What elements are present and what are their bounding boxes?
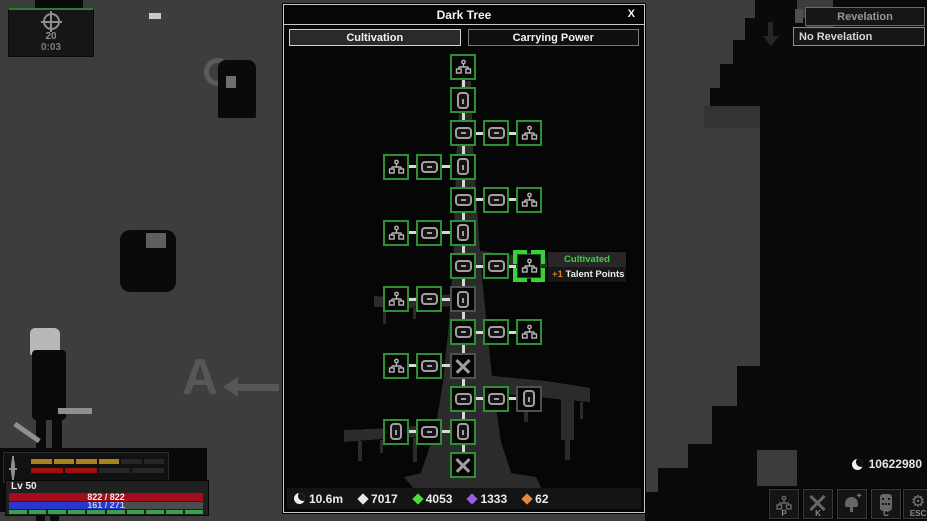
talent-node[interactable] — [416, 154, 442, 180]
stone-tablet-icon — [421, 161, 438, 173]
talent-node[interactable] — [383, 353, 409, 379]
branch-icon — [388, 291, 405, 307]
talent-node[interactable] — [416, 220, 442, 246]
wave-timer: 0:03 — [41, 42, 61, 53]
meter-segment — [121, 459, 142, 464]
branch-icon — [455, 59, 472, 75]
meter-segment — [146, 510, 164, 514]
talent-node[interactable] — [450, 54, 476, 80]
bell-stem — [850, 507, 853, 512]
talent-node[interactable] — [450, 220, 476, 246]
branch-icon — [388, 358, 405, 374]
tooltip-status: Cultivated — [548, 252, 626, 267]
selection-bracket — [531, 250, 545, 264]
branch-icon — [521, 324, 538, 340]
meter-segment — [107, 510, 125, 514]
dialog-header: Dark Tree X — [284, 5, 644, 25]
resource-gem-purple: 1333 — [468, 492, 507, 506]
wave-panel: 20 0:03 — [8, 8, 94, 57]
blob-head — [146, 233, 166, 248]
stone-tablet-icon — [457, 224, 469, 241]
revelation-title: Revelation — [837, 11, 893, 23]
stone-tablet-icon — [421, 227, 438, 239]
revelation-panel[interactable]: Revelation — [805, 7, 925, 26]
enemy-face — [226, 76, 236, 88]
talent-node[interactable] — [483, 386, 509, 412]
settings-button[interactable]: ⚙ ESC — [903, 489, 927, 519]
meter-segment — [144, 459, 165, 464]
sword-icon — [58, 408, 92, 414]
talent-node[interactable] — [383, 154, 409, 180]
hotkey-label: K — [804, 509, 832, 518]
resource-gem-white: 7017 — [359, 492, 398, 506]
resource-value: 4053 — [426, 492, 453, 506]
stone-tablet-icon — [455, 194, 472, 206]
resource-value: 1333 — [480, 492, 507, 506]
white-spark — [149, 13, 161, 19]
target-icon — [43, 13, 60, 30]
diamond-icon — [357, 493, 368, 504]
close-button[interactable]: X — [628, 8, 635, 20]
stone-tablet-icon — [488, 127, 505, 139]
dialog-title: Dark Tree — [437, 8, 492, 22]
meter-segment — [31, 459, 52, 464]
meter-segment — [127, 510, 145, 514]
stone-tablet-icon — [457, 423, 469, 440]
statue-arrow-head — [763, 36, 779, 46]
talent-node[interactable] — [483, 120, 509, 146]
resource-value: 7017 — [371, 492, 398, 506]
resource-gem-green: 4053 — [414, 492, 453, 506]
branch-icon — [388, 159, 405, 175]
mp-bar: 161 / 271 — [9, 502, 203, 509]
meter-segment — [9, 510, 27, 514]
branch-icon — [521, 192, 538, 208]
moon-currency-display: 10622980 — [852, 457, 922, 471]
dark-wall-step-1 — [737, 366, 763, 521]
resource-value: 10.6m — [309, 492, 343, 506]
hp-text: 822 / 822 — [9, 493, 203, 501]
stone-tablet-icon — [523, 390, 535, 407]
talent-node[interactable] — [483, 319, 509, 345]
talent-node[interactable] — [383, 220, 409, 246]
hotkey-label: C — [872, 509, 900, 518]
dark-wall-step-4 — [658, 468, 690, 521]
cross-icon — [455, 457, 471, 473]
talent-node[interactable] — [516, 187, 542, 213]
talent-node[interactable] — [450, 419, 476, 445]
talent-node[interactable] — [450, 253, 476, 279]
stamina-bar — [9, 510, 203, 514]
stone-tablet-icon — [421, 360, 438, 372]
dark-wall-step-5 — [645, 492, 660, 521]
dark-wall-step-3 — [688, 444, 714, 521]
stone-tablet-icon — [457, 158, 469, 175]
meter-segment — [48, 510, 66, 514]
talent-node[interactable] — [450, 87, 476, 113]
stone-tablet-icon — [390, 423, 402, 440]
revelation-tab-sliver — [795, 9, 803, 23]
player-status-panel: Lv 50 822 / 822 161 / 271 — [5, 480, 209, 516]
dark-wall-step-2 — [712, 406, 740, 521]
enemy-sprite-hooded — [218, 60, 256, 118]
meter-segment — [65, 468, 97, 473]
moon-currency-value: 10622980 — [869, 457, 922, 471]
hp-bar: 822 / 822 — [9, 493, 203, 501]
talent-node[interactable] — [516, 120, 542, 146]
talents-button[interactable]: P — [769, 489, 799, 519]
statue-sprite — [755, 0, 797, 20]
branch-icon — [521, 125, 538, 141]
gold-meter — [31, 459, 164, 464]
meter-segment — [54, 459, 75, 464]
stone-tablet-icon — [488, 393, 505, 405]
stone-tablet-icon — [488, 260, 505, 272]
consumable-button[interactable]: ✦ — [837, 489, 867, 519]
stone-tablet-icon — [457, 92, 469, 109]
talent-node-selected[interactable] — [516, 253, 542, 279]
talent-node[interactable] — [450, 353, 476, 379]
revelation-status[interactable]: No Revelation — [793, 27, 925, 46]
selection-bracket — [531, 268, 545, 282]
talent-node[interactable] — [450, 386, 476, 412]
diamond-icon — [521, 493, 532, 504]
level-label: Lv 50 — [11, 481, 37, 492]
resource-moon: 10.6m — [294, 492, 343, 506]
tab-cultivation[interactable]: Cultivation — [289, 29, 461, 46]
talent-node[interactable] — [450, 154, 476, 180]
talent-node[interactable] — [516, 319, 542, 345]
meter-segment — [29, 510, 47, 514]
tooltip-bonus: +1 Talent Points — [548, 267, 626, 282]
talent-node[interactable] — [483, 253, 509, 279]
tab-carrying-power[interactable]: Carrying Power — [468, 29, 640, 46]
hotkey-label: P — [770, 509, 798, 518]
talent-node[interactable] — [450, 187, 476, 213]
stone-tablet-icon — [488, 326, 505, 338]
talent-node[interactable] — [416, 286, 442, 312]
skills-button[interactable]: K — [803, 489, 833, 519]
tooltip-bonus-value: +1 — [552, 269, 563, 280]
moon-icon — [294, 493, 305, 504]
meter-segment — [31, 468, 63, 473]
wave-counter: 20 — [45, 31, 56, 42]
meter-segment — [99, 459, 120, 464]
dark-wall-1 — [833, 0, 927, 521]
talent-node[interactable] — [450, 452, 476, 478]
gear-icon: ⚙ — [911, 492, 925, 511]
talent-node[interactable] — [383, 286, 409, 312]
stone-tablet-icon — [421, 426, 438, 438]
moon-icon — [852, 459, 863, 470]
stone-tablet-icon — [455, 393, 472, 405]
selection-bracket — [513, 268, 527, 282]
talent-node[interactable] — [416, 353, 442, 379]
talent-node[interactable] — [450, 319, 476, 345]
talent-node[interactable] — [516, 386, 542, 412]
tooltip-bonus-label: Talent Points — [563, 269, 625, 280]
resource-gem-orange: 62 — [523, 492, 548, 506]
meter-segment — [166, 510, 184, 514]
talent-node[interactable] — [450, 120, 476, 146]
stone-tablet-icon — [421, 293, 438, 305]
spark-icon: ✦ — [856, 492, 862, 500]
branch-icon — [388, 225, 405, 241]
meter-segment — [99, 468, 131, 473]
talent-node[interactable] — [483, 187, 509, 213]
meter-segment — [132, 468, 164, 473]
keyboard-hint-letter: A — [182, 348, 218, 406]
resource-value: 62 — [535, 492, 548, 506]
meter-segment — [68, 510, 86, 514]
talent-node[interactable] — [450, 286, 476, 312]
combat-meter-panel — [3, 452, 169, 483]
stone-tablet-icon — [455, 260, 472, 272]
hint-arrow-head — [223, 377, 238, 397]
diamond-icon — [412, 493, 423, 504]
node-tooltip: Cultivated +1 Talent Points — [547, 251, 627, 283]
hint-arrow-icon — [237, 384, 279, 391]
stone-tablet-icon — [455, 326, 472, 338]
diamond-icon — [467, 493, 478, 504]
stone-tablet-icon — [457, 291, 469, 308]
selection-bracket — [513, 250, 527, 264]
game-screen: 20 0:03 Lv 50 822 / 822 161 / 271 A Reve… — [0, 0, 927, 521]
stone-tablet-icon — [455, 127, 472, 139]
hotkey-label: ESC — [904, 509, 927, 518]
dark-tree-dialog: Dark Tree X Cultivation Carrying Power — [283, 4, 645, 513]
resource-bar: 10.6m 7017 4053 1333 62 — [287, 488, 641, 509]
revelation-status-text: No Revelation — [799, 31, 872, 43]
meter-segment — [185, 510, 203, 514]
talent-node[interactable] — [383, 419, 409, 445]
meter-segment — [87, 510, 105, 514]
red-meter — [31, 468, 164, 473]
mp-text: 161 / 271 — [9, 502, 203, 509]
meter-segment — [76, 459, 97, 464]
crosshair-icon — [11, 458, 15, 479]
cross-icon — [455, 358, 471, 374]
talent-node[interactable] — [416, 419, 442, 445]
companion-button[interactable]: C — [871, 489, 901, 519]
gray-platform — [757, 450, 797, 486]
stone-tablet-icon — [488, 194, 505, 206]
